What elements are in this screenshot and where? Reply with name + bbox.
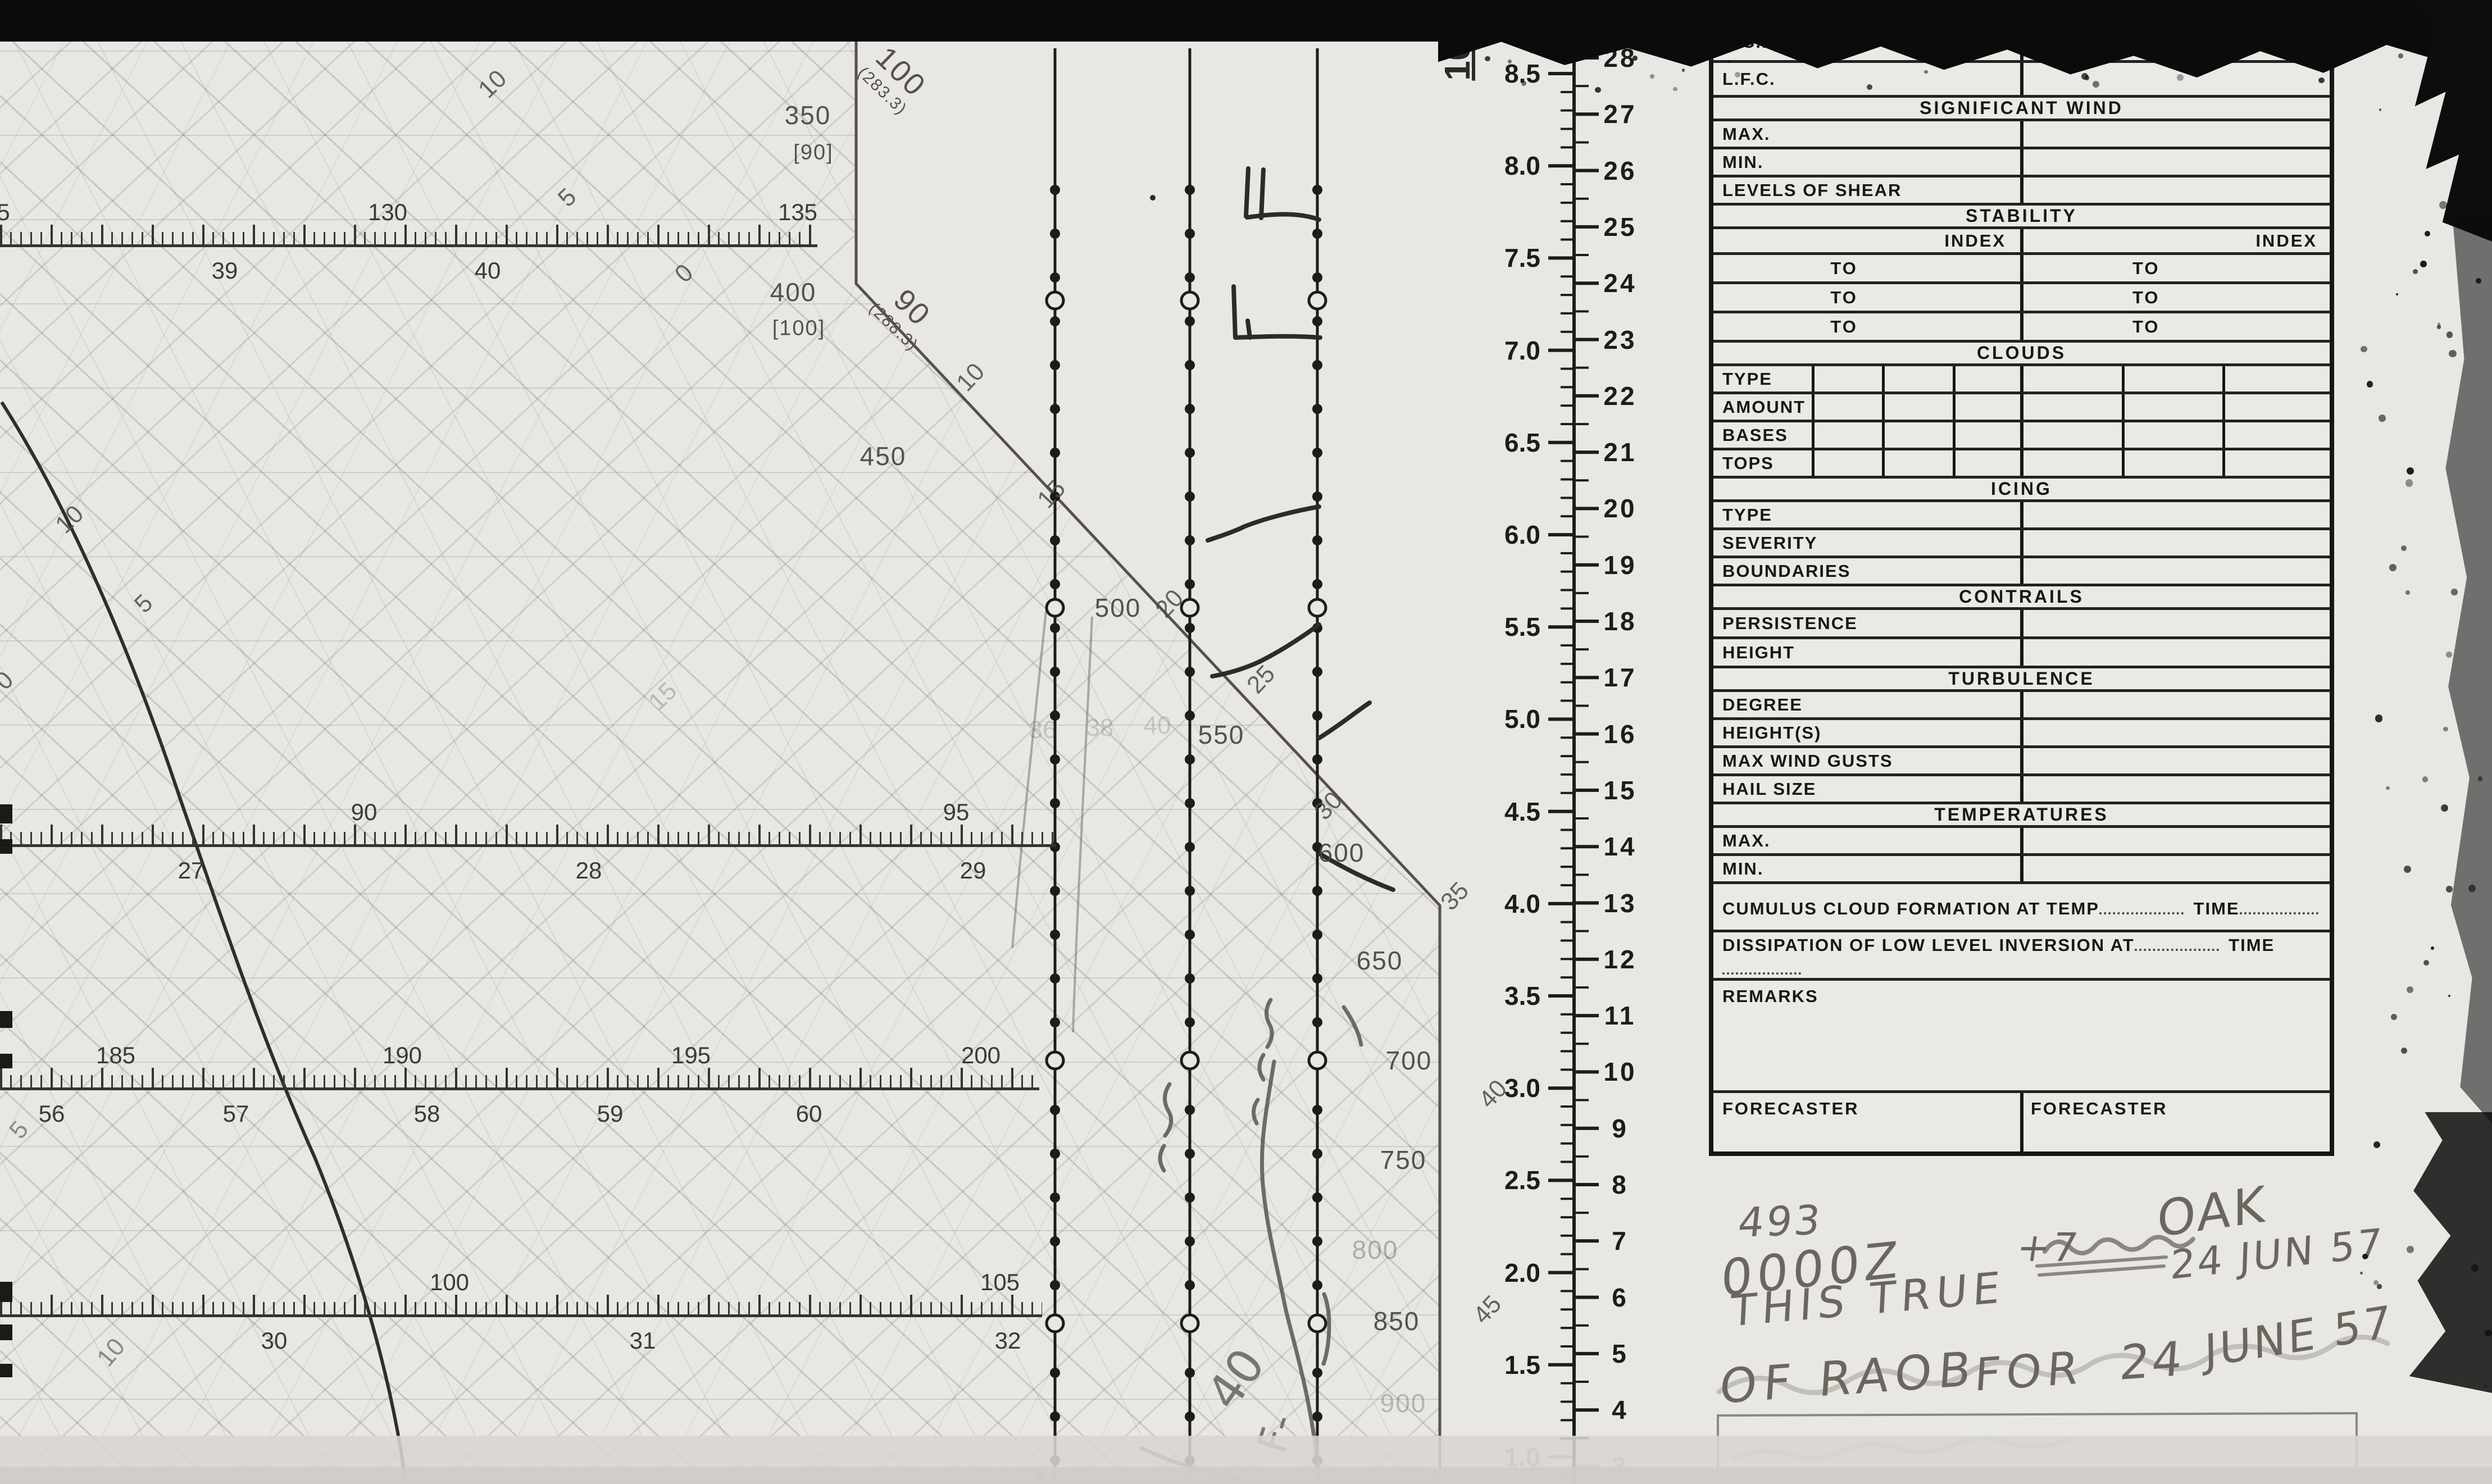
ruler-number-above-135: 135 [778,199,817,226]
printed-height-curve [1073,617,1092,1032]
plot-open-circle [1047,292,1063,309]
plot-dot [1050,754,1060,764]
form-row-degree: DEGREE [1713,692,2330,720]
wind-barb [1234,286,1235,338]
ruler-ticks-major [0,1295,1042,1316]
scan-speckle [2431,946,2434,950]
plot-dot [1312,754,1322,764]
printed-height-curve [1012,611,1046,948]
ruler-number-below-29: 29 [960,857,986,884]
form-field-label: HAIL SIZE [1713,779,1816,799]
km-label: 8.0 [1504,151,1540,181]
scan-speckle [1735,72,1740,78]
pencil-mark [1160,1146,1164,1171]
ruler-number-above-190: 190 [383,1042,422,1069]
pressure-label-700: 700 [1386,1045,1433,1076]
scan-speckle [2377,1284,2382,1289]
plot-dot [1185,711,1195,721]
ruler-number-below-30: 30 [261,1327,288,1354]
plot-dot [1050,1412,1060,1422]
plot-dot [1312,360,1322,370]
form-row-to: TOTO [1713,284,2330,313]
pencil-mark [1165,1084,1171,1136]
form-remarks-label: REMARKS [1713,981,1818,1007]
km-label: 1.5 [1504,1350,1540,1380]
form-row-to: TOTO [1713,313,2330,343]
scan-speckle [1682,69,1685,72]
handwriting--7: +7 [2014,1224,2083,1271]
scan-speckle [1595,87,1600,93]
plot-dot [1185,185,1195,195]
scan-speckle [2318,78,2325,84]
pressure-label-400: 400 [770,277,817,307]
scan-speckle [2439,201,2447,209]
form-cloud-row-label: TOPS [1713,453,1774,474]
scan-speckle [2386,786,2390,790]
form-to-label: TO [1830,317,1858,337]
ruler-number-below-31: 31 [630,1327,656,1354]
form-row-hail-size: HAIL SIZE [1713,776,2330,804]
plot-dot [1185,579,1195,589]
plot-dot [1185,360,1195,370]
form-to-label: TO [1830,258,1858,279]
plot-open-circle [1047,1052,1063,1069]
plot-dot [1050,1236,1060,1246]
form-row-persistence: PERSISTENCE [1713,610,2330,639]
plot-open-circle [1047,599,1063,616]
scan-speckle [1673,87,1677,91]
scan-speckle [2172,65,2177,69]
form-row-forecaster: FORECASTERFORECASTER [1713,1093,2330,1151]
ruler-number-above-130: 130 [368,199,407,226]
scan-speckle [1710,76,1713,79]
scan-left-mark [0,804,12,823]
plot-dot [1312,1412,1322,1422]
pressure-label-800: 800 [1352,1235,1399,1265]
kft-label: 24 [1603,268,1636,298]
form-blank-row-label: CUMULUS CLOUD FORMATION AT TEMP TIME [1713,895,2318,919]
form-row-bases: BASES [1713,422,2330,450]
scan-speckle [2471,1264,2479,1272]
scan-speckle [2446,331,2453,338]
pressure-label-[90]: [90] [793,141,833,165]
form-row-contrails: CONTRAILS [1713,586,2330,610]
form-section-header: STABILITY [1713,206,2330,226]
plot-dot [1050,229,1060,239]
plot-dot [1185,491,1195,502]
form-row-max-wind-gusts: MAX WIND GUSTS [1713,748,2330,776]
form-blank-underline [2135,932,2219,951]
plot-dot [1185,798,1195,808]
form-section-header: CLOUDS [1713,343,2330,363]
form-row-turbulence: TURBULENCE [1713,668,2330,692]
kft-label: 11 [1604,1000,1636,1031]
plot-dot [1050,535,1060,545]
ruler-number-above-185: 185 [96,1042,135,1069]
plot-dot [1185,1017,1195,1027]
plot-dot [1050,1149,1060,1159]
form-row-severity: SEVERITY [1713,530,2330,558]
form-to-label: TO [2132,317,2160,337]
scan-speckle [2420,261,2427,267]
pencil-mark [1259,1055,1263,1080]
form-field-label: HEIGHT(S) [1713,723,1821,743]
scan-speckle [2449,350,2456,357]
form-row-height: HEIGHT [1713,639,2330,668]
plot-dot [1185,886,1195,896]
form-cloud-row-label: BASES [1713,425,1788,445]
plot-dot [1050,798,1060,808]
form-field-label: HEIGHT [1713,643,1795,663]
ruler-number-above-105: 105 [980,1269,1020,1296]
km-label: 6.5 [1504,427,1540,458]
plot-dot [1185,535,1195,545]
form-to-label: TO [1830,288,1858,308]
scan-left-mark [0,1011,12,1028]
plot-open-circle [1181,292,1198,309]
scan-speckle [2379,108,2382,111]
kft-label: 14 [1603,831,1636,862]
ruler-number-above-90: 90 [351,799,378,826]
kft-label: 25 [1603,212,1636,242]
plot-dot [1050,1368,1060,1378]
form-forecaster-label: FORECASTER [1722,1099,1859,1119]
form-row-height-s-: HEIGHT(S) [1713,720,2330,748]
ruler-number-above-95: 95 [943,799,970,826]
plot-dot [1050,1280,1060,1290]
plot-dot [1050,886,1060,896]
form-row-dissipation-of-low-level-inversion-at: DISSIPATION OF LOW LEVEL INVERSION AT TI… [1713,932,2330,981]
form-cloud-row-label: TYPE [1713,369,1772,389]
form-row-temperatures: TEMPERATURES [1713,804,2330,828]
form-row-index: INDEXINDEX [1713,229,2330,255]
form-row-boundaries: BOUNDARIES [1713,558,2330,586]
ruler-number-below-27: 27 [178,857,204,884]
plot-open-circle [1309,292,1326,309]
kft-label: 6 [1612,1282,1629,1313]
pressure-label-500: 500 [1095,593,1142,623]
ruler-number-below-58: 58 [414,1100,440,1127]
km-label: 5.0 [1504,704,1540,734]
kft-label: 15 [1603,775,1636,805]
kft-label: 19 [1603,550,1636,580]
plot-dot [1185,1236,1195,1246]
wind-barb [1246,169,1248,216]
form-field-label: LEVELS OF SHEAR [1713,180,1902,201]
scan-speckle [2398,53,2403,58]
plot-dot [1050,579,1060,589]
kft-label: 16 [1603,719,1636,749]
scan-speckle [2423,960,2429,966]
plot-dot [1312,1368,1322,1378]
form-row-max-: MAX. [1713,828,2330,856]
scan-speckle [1867,84,1872,90]
form-index-label: INDEX [2255,231,2317,251]
km-label: 3.0 [1504,1073,1540,1103]
pressure-label-750: 750 [1380,1145,1427,1175]
form-cloud-row-label: AMOUNT [1713,397,1806,417]
scan-speckle [2405,479,2413,486]
pressure-label-[100]: [100] [772,317,826,341]
ruler-ticks-major [0,225,817,246]
plot-dot [1050,316,1060,326]
wind-barb [1208,507,1319,540]
pencil-mark [1253,1100,1258,1123]
plot-dot [1312,448,1322,458]
plot-dot [1312,1017,1322,1027]
plot-dot [1312,229,1322,239]
plot-dot [1185,448,1195,458]
km-label: 4.5 [1504,796,1540,827]
plot-open-circle [1309,1052,1326,1069]
form-field-label: PERSISTENCE [1713,613,1858,634]
scan-speckle [2375,714,2382,722]
plot-dot [1050,1192,1060,1203]
plot-dot [1185,229,1195,239]
ruler-number-below-57: 57 [223,1100,249,1127]
scan-left-mark [0,1324,12,1340]
scan-speckle [2373,1141,2380,1148]
kft-label: 7 [1612,1226,1629,1256]
kft-label: 18 [1603,606,1636,636]
form-row-icing: ICING [1713,479,2330,502]
plot-dot [1050,930,1060,940]
kft-label: 22 [1603,381,1636,411]
scan-speckle [2367,381,2373,387]
ruler-number-above-200: 200 [961,1042,1001,1069]
plot-dot [1312,185,1322,195]
plot-dot [1185,1192,1195,1203]
form-row-type: TYPE [1713,366,2330,394]
forecast-worksheet-form: C.C.L.L.F.C.SIGNIFICANT WINDMAX.MIN.LEVE… [1709,19,2334,1156]
form-row-min-: MIN. [1713,149,2330,177]
kft-label: 10 [1603,1057,1636,1087]
kft-label: 23 [1603,325,1636,355]
isotherm-label-36: 36 [1029,716,1057,744]
scan-speckle [2478,776,2482,781]
form-field-label: BOUNDARIES [1713,561,1850,581]
scan-speckle [2407,1246,2414,1253]
plot-dot [1050,360,1060,370]
ruler-number-above-195: 195 [671,1042,711,1069]
form-row-max-: MAX. [1713,121,2330,149]
pencil-mark [1266,1000,1272,1047]
scan-speckle [2422,776,2428,782]
plot-dot [1312,1105,1322,1115]
scan-speckle [2389,564,2396,571]
scan-left-mark [0,839,12,854]
plot-dot [1185,973,1195,984]
ruler-number-below-39: 39 [212,257,238,284]
scan-speckle [2407,986,2413,993]
form-row-levels-of-shear: LEVELS OF SHEAR [1713,177,2330,206]
scan-speckle [2438,322,2440,325]
scan-speckle [2401,545,2407,551]
form-section-header: ICING [1713,479,2330,499]
scan-speckle [2373,1280,2379,1285]
scan-speckle [1485,56,1490,62]
pressure-label-350: 350 [785,100,831,130]
plot-dot [1312,1192,1322,1203]
km-label: 7.0 [1504,335,1540,366]
plot-dot [1312,667,1322,677]
km-label: 4.0 [1504,889,1540,919]
form-row-cumulus-cloud-formation-at-temp: CUMULUS CLOUD FORMATION AT TEMP TIME [1713,884,2330,932]
plot-dot [1312,491,1322,502]
kft-label: 5 [1612,1339,1629,1369]
handwriting-for: FOR [1973,1341,2086,1401]
form-field-label: MAX WIND GUSTS [1713,751,1893,771]
kft-label: 20 [1603,493,1636,524]
scan-speckle [2446,886,2453,893]
stray-dot [1150,195,1156,201]
plot-dot [1050,973,1060,984]
scan-left-mark [0,1364,12,1377]
scan-left-mark [0,1054,12,1068]
form-blank-underline [2240,895,2318,914]
plot-dot [1185,754,1195,764]
plot-open-circle [1309,1315,1326,1332]
plot-open-circle [1181,1052,1198,1069]
form-section-header: SIGNIFICANT WIND [1713,98,2330,119]
plot-dot [1050,272,1060,283]
form-field-label: MIN. [1713,152,1763,172]
form-to-label: TO [2132,288,2160,308]
plot-dot [1050,1105,1060,1115]
form-field-label: DEGREE [1713,695,1803,715]
form-row-to: TOTO [1713,255,2330,284]
plot-dot [1185,667,1195,677]
plot-dot [1312,272,1322,283]
km-label: 3.5 [1504,981,1540,1011]
plot-open-circle [1181,1315,1198,1332]
form-field-label: L.F.C. [1713,69,1776,89]
plot-open-circle [1047,1315,1063,1332]
plot-dot [1312,711,1322,721]
form-field-label: TYPE [1713,505,1772,525]
wind-barb [1236,336,1320,338]
km-label: 5.5 [1504,612,1540,642]
ruler-number-below-60: 60 [796,1100,822,1127]
form-row-significant-wind: SIGNIFICANT WIND [1713,98,2330,121]
plot-dot [1050,1017,1060,1027]
form-blank-row-label: DISSIPATION OF LOW LEVEL INVERSION AT TI… [1713,932,2330,979]
plot-dot [1312,579,1322,589]
form-row-type: TYPE [1713,502,2330,530]
form-field-label: SEVERITY [1713,533,1817,553]
isotherm-label-40: 40 [1144,712,1171,740]
pressure-label-450: 450 [860,441,907,471]
form-field-label: MAX. [1713,831,1771,851]
ruler-number-below-32: 32 [995,1327,1021,1354]
plot-dot [1312,535,1322,545]
ruler-ticks-major [0,825,1056,846]
pressure-label-550: 550 [1198,720,1245,750]
form-row-clouds: CLOUDS [1713,343,2330,366]
form-section-header: TEMPERATURES [1713,804,2330,825]
ruler-ticks-major [0,1068,1039,1089]
plot-dot [1312,1149,1322,1159]
scan-speckle [2476,278,2481,284]
kft-label: 17 [1603,662,1636,693]
form-row-stability: STABILITY [1713,206,2330,229]
ruler-number-below-56: 56 [39,1100,65,1127]
form-row-l-f-c-: L.F.C. [1713,63,2330,98]
scan-speckle [2085,75,2090,80]
form-blank-underline [1722,955,1801,975]
handwriting-24: 24 [2118,1331,2186,1391]
plot-dot [1185,1149,1195,1159]
form-row-tops: TOPS [1713,450,2330,479]
plot-dot [1050,448,1060,458]
scan-speckle [2443,727,2448,731]
form-blank-underline [2099,895,2184,914]
kft-label: 21 [1603,437,1636,467]
scan-left-mark [0,1282,12,1302]
form-forecaster-label: FORECASTER [2031,1099,2168,1119]
ruler-number-below-28: 28 [576,857,602,884]
wind-barb [1261,170,1263,218]
form-row-remarks: REMARKS [1713,981,2330,1093]
form-field-label: MAX. [1713,124,1771,144]
plot-dot [1185,272,1195,283]
scanned-adiabatic-chart-page: 350[90]400[100]4505005506006507007508008… [0,0,2492,1484]
isotherm-label-38: 38 [1086,714,1114,742]
kft-label: 12 [1603,944,1636,975]
kft-label: 8 [1612,1169,1629,1200]
kft-label: 13 [1603,888,1636,918]
plot-dot [1312,1280,1322,1290]
kft-label: 26 [1603,156,1636,186]
pressure-label-850: 850 [1374,1306,1420,1336]
plot-dot [1185,1280,1195,1290]
form-index-label: INDEX [1944,231,2006,251]
form-section-header: TURBULENCE [1713,668,2330,689]
pressure-label-900: 900 [1380,1388,1427,1418]
plot-open-circle [1309,599,1326,616]
km-label: 2.0 [1504,1258,1540,1288]
plot-dot [1312,973,1322,984]
wind-barb [1247,215,1319,220]
scan-speckle [2407,467,2414,475]
plot-dot [1050,667,1060,677]
plot-dot [1312,930,1322,940]
plot-dot [1050,623,1060,633]
scan-speckle [2177,74,2184,81]
form-section-header: CONTRAILS [1713,586,2330,607]
plot-dot [1185,404,1195,414]
scan-speckle [1924,70,1928,74]
plot-dot [1185,930,1195,940]
plot-dot [1312,1236,1322,1246]
scan-bottom-edge2 [0,1467,2492,1484]
scan-speckle [2379,415,2385,421]
km-label: 2.5 [1504,1165,1540,1195]
plot-dot [1050,185,1060,195]
pencil-mark [1344,1007,1361,1045]
km-label: 7.5 [1504,243,1540,273]
form-row-min-: MIN. [1713,856,2330,884]
plot-dot [1185,316,1195,326]
plot-dot [1185,1105,1195,1115]
plot-dot [1185,1368,1195,1378]
ruler-number-below-40: 40 [475,257,501,284]
km-label: 6.0 [1504,520,1540,550]
form-row-amount: AMOUNT [1713,394,2330,422]
kft-label: 9 [1612,1113,1629,1144]
form-to-label: TO [2132,258,2160,279]
plot-dot [1312,316,1322,326]
